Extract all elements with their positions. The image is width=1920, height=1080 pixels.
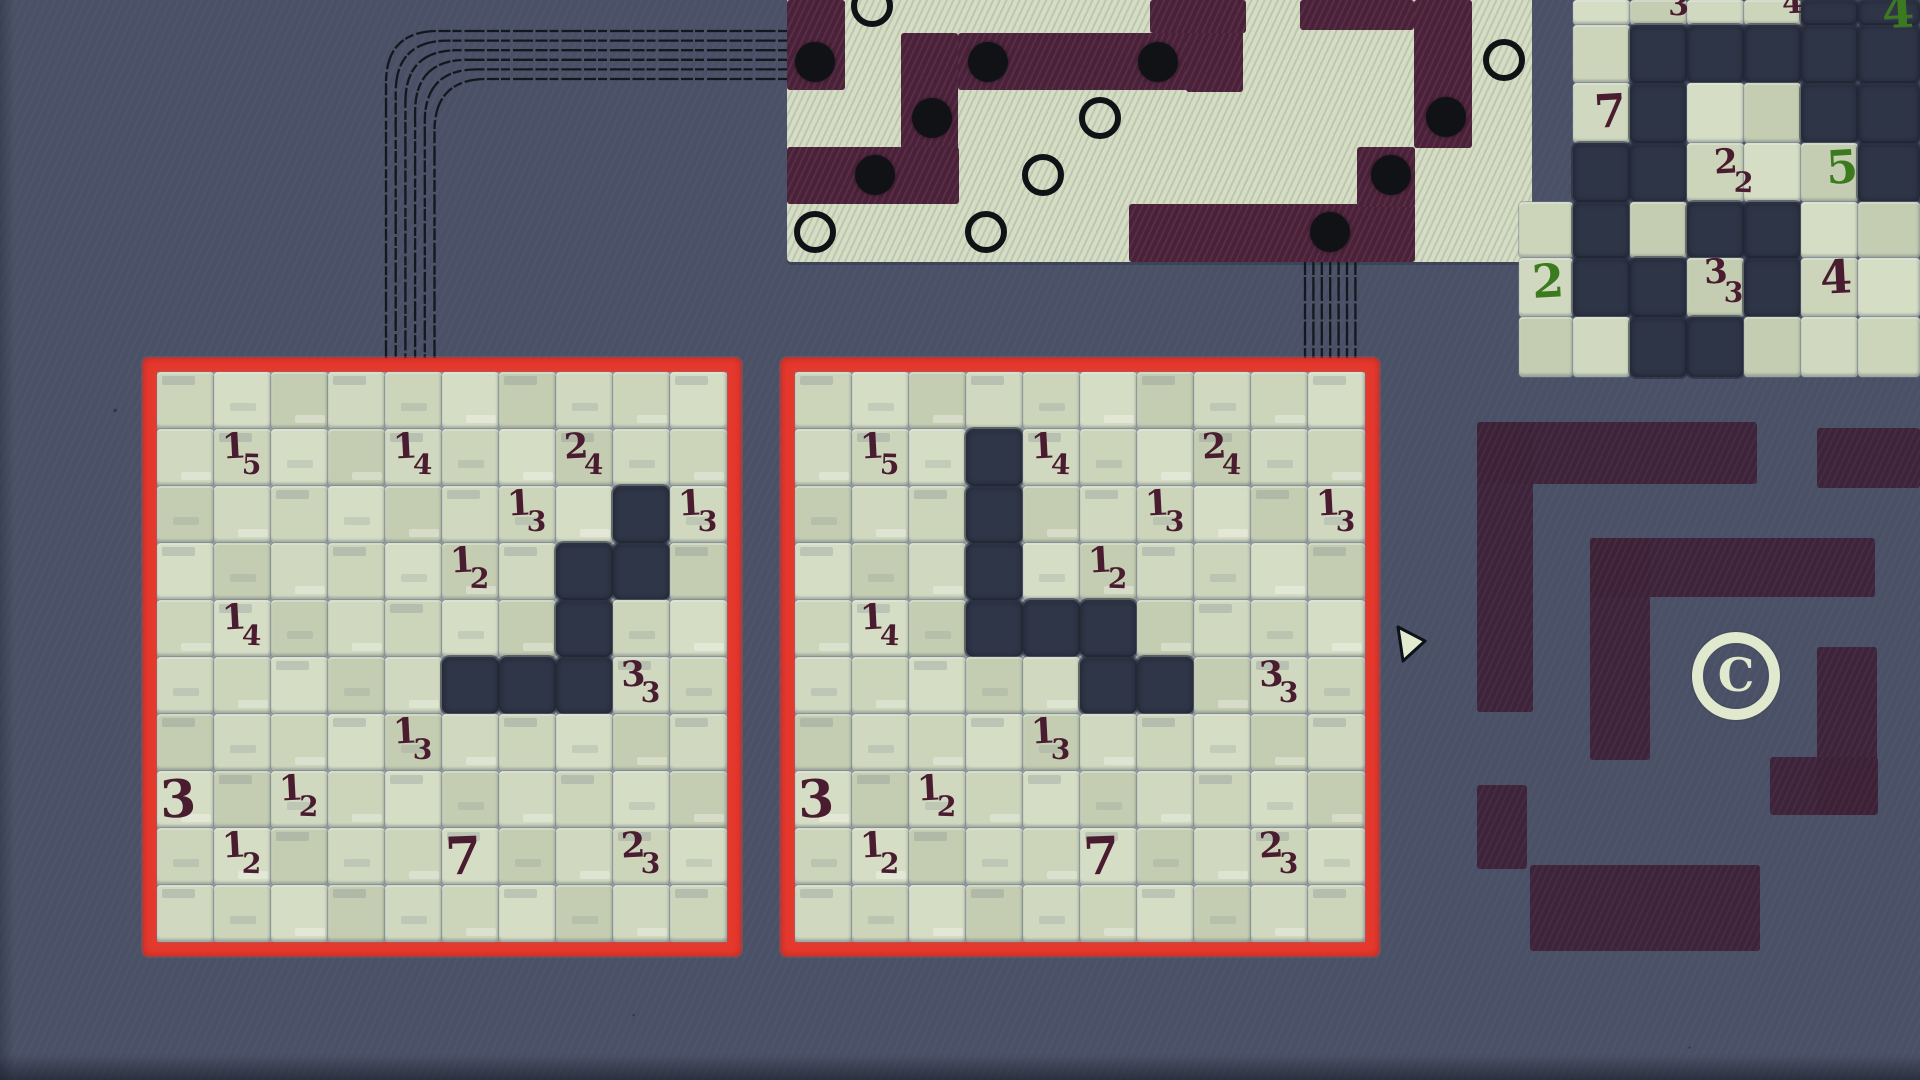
grid-cell[interactable] bbox=[1251, 372, 1308, 429]
mosaic-cell[interactable] bbox=[1858, 143, 1920, 202]
grid-cell[interactable] bbox=[1080, 543, 1137, 600]
grid-cell[interactable] bbox=[385, 543, 442, 600]
grid-cell[interactable] bbox=[328, 600, 385, 657]
grid-cell[interactable] bbox=[1194, 486, 1251, 543]
grid-cell[interactable] bbox=[966, 714, 1023, 771]
grid-cell[interactable] bbox=[909, 714, 966, 771]
mosaic-cell[interactable] bbox=[1744, 143, 1801, 202]
grid-cell[interactable] bbox=[613, 429, 670, 486]
puzzle-grid-left-cells bbox=[157, 372, 727, 942]
mosaic-cell[interactable] bbox=[1744, 317, 1801, 377]
grid-cell[interactable] bbox=[966, 429, 1023, 486]
grid-cell[interactable] bbox=[613, 543, 670, 600]
grid-cell[interactable] bbox=[271, 714, 328, 771]
grid-cell[interactable] bbox=[1251, 885, 1308, 942]
grid-cell[interactable] bbox=[271, 486, 328, 543]
grid-cell[interactable] bbox=[157, 486, 214, 543]
grid-cell[interactable] bbox=[271, 885, 328, 942]
grid-cell[interactable] bbox=[157, 828, 214, 885]
grid-cell[interactable] bbox=[157, 657, 214, 714]
grid-cell[interactable] bbox=[795, 657, 852, 714]
mosaic-cell[interactable] bbox=[1858, 0, 1920, 25]
mosaic-cell[interactable] bbox=[1744, 0, 1801, 25]
grid-cell[interactable] bbox=[909, 600, 966, 657]
grid-cell[interactable] bbox=[670, 543, 727, 600]
grid-cell[interactable] bbox=[1194, 714, 1251, 771]
grid-cell[interactable] bbox=[613, 600, 670, 657]
copyright-symbol: C bbox=[1718, 652, 1755, 698]
mosaic-clue: 22 bbox=[1714, 146, 1771, 203]
puzzle-grid-right[interactable]: 15142413131214331331212723 bbox=[781, 358, 1379, 956]
grid-cell[interactable] bbox=[214, 771, 271, 828]
grid-cell[interactable] bbox=[1194, 771, 1251, 828]
mosaic-cell[interactable] bbox=[1573, 202, 1630, 258]
grid-cell[interactable] bbox=[795, 600, 852, 657]
grid-cell[interactable] bbox=[499, 486, 556, 543]
grid-cell[interactable] bbox=[442, 657, 499, 714]
grid-cell[interactable] bbox=[1023, 372, 1080, 429]
mosaic-cell[interactable] bbox=[1801, 258, 1858, 317]
mosaic-cell[interactable] bbox=[1801, 0, 1858, 25]
mosaic-cell[interactable] bbox=[1573, 83, 1630, 143]
grid-cell[interactable] bbox=[909, 372, 966, 429]
grid-cell[interactable] bbox=[157, 600, 214, 657]
grid-cell[interactable] bbox=[1080, 657, 1137, 714]
grid-cell[interactable] bbox=[385, 828, 442, 885]
grid-cell[interactable] bbox=[1137, 828, 1194, 885]
pearl-filled-icon bbox=[1371, 155, 1411, 195]
grid-cell[interactable] bbox=[385, 657, 442, 714]
grid-cell[interactable] bbox=[795, 885, 852, 942]
mosaic-cell[interactable] bbox=[1687, 317, 1744, 377]
mosaic-cell[interactable] bbox=[1858, 25, 1920, 83]
pearl-filled-icon bbox=[912, 98, 952, 138]
grid-cell[interactable] bbox=[271, 543, 328, 600]
maze-wall bbox=[1817, 428, 1920, 488]
grid-cell[interactable] bbox=[499, 429, 556, 486]
grid-cell[interactable] bbox=[670, 657, 727, 714]
grid-cell[interactable] bbox=[499, 714, 556, 771]
mosaic-cell[interactable] bbox=[1573, 25, 1630, 83]
grid-cell[interactable] bbox=[1194, 543, 1251, 600]
grid-cell[interactable] bbox=[214, 372, 271, 429]
puzzle-grid-right-cells bbox=[795, 372, 1365, 942]
grid-cell[interactable] bbox=[1137, 429, 1194, 486]
grid-cell[interactable] bbox=[613, 486, 670, 543]
grid-cell[interactable] bbox=[157, 885, 214, 942]
grid-cell[interactable] bbox=[613, 372, 670, 429]
grid-cell[interactable] bbox=[328, 543, 385, 600]
grid-cell[interactable] bbox=[966, 657, 1023, 714]
wire-bundle-left bbox=[386, 31, 790, 362]
mosaic-clue: 5 bbox=[1826, 140, 1858, 194]
grid-cell[interactable] bbox=[1137, 486, 1194, 543]
grid-cell[interactable] bbox=[556, 543, 613, 600]
pearl-filled-icon bbox=[795, 42, 835, 82]
mosaic-cell[interactable] bbox=[1519, 317, 1573, 377]
grid-cell[interactable] bbox=[556, 486, 613, 543]
grid-cell[interactable] bbox=[1080, 600, 1137, 657]
copyright-icon: C bbox=[1692, 632, 1780, 720]
grid-cell[interactable] bbox=[909, 885, 966, 942]
pearl-open-icon bbox=[1079, 97, 1121, 139]
grid-cell[interactable] bbox=[1251, 600, 1308, 657]
grid-cell[interactable] bbox=[1308, 714, 1365, 771]
grid-cell[interactable] bbox=[1137, 543, 1194, 600]
mosaic-cell[interactable] bbox=[1573, 143, 1630, 202]
grid-cell[interactable] bbox=[1194, 372, 1251, 429]
grid-cell[interactable] bbox=[499, 600, 556, 657]
grid-cell[interactable] bbox=[1194, 885, 1251, 942]
grid-cell[interactable] bbox=[1308, 657, 1365, 714]
mosaic-cell[interactable] bbox=[1801, 83, 1858, 143]
mosaic-cell[interactable] bbox=[1687, 25, 1744, 83]
grid-cell[interactable] bbox=[214, 885, 271, 942]
grid-cell[interactable] bbox=[214, 657, 271, 714]
grid-cell[interactable] bbox=[1080, 372, 1137, 429]
mosaic-cell[interactable] bbox=[1519, 258, 1573, 317]
grid-cell[interactable] bbox=[852, 600, 909, 657]
grid-cell[interactable] bbox=[271, 429, 328, 486]
grid-cell[interactable] bbox=[1251, 486, 1308, 543]
grid-cell[interactable] bbox=[385, 771, 442, 828]
grid-cell[interactable] bbox=[499, 657, 556, 714]
grid-cell[interactable] bbox=[1137, 600, 1194, 657]
grid-cell[interactable] bbox=[328, 429, 385, 486]
grid-cell[interactable] bbox=[1137, 657, 1194, 714]
grid-cell[interactable] bbox=[852, 885, 909, 942]
grid-cell[interactable] bbox=[1308, 828, 1365, 885]
grid-cell[interactable] bbox=[442, 714, 499, 771]
grid-cell[interactable] bbox=[271, 771, 328, 828]
grid-cell[interactable] bbox=[795, 486, 852, 543]
pearl-open-icon bbox=[1022, 154, 1064, 196]
grid-cell[interactable] bbox=[442, 771, 499, 828]
mosaic-cell[interactable] bbox=[1630, 0, 1687, 25]
grid-cell[interactable] bbox=[852, 543, 909, 600]
grid-cell[interactable] bbox=[966, 828, 1023, 885]
grid-cell[interactable] bbox=[1194, 600, 1251, 657]
grid-cell[interactable] bbox=[613, 828, 670, 885]
wire-bundle-right bbox=[1305, 259, 1355, 362]
grid-cell[interactable] bbox=[1308, 600, 1365, 657]
grid-cell[interactable] bbox=[909, 828, 966, 885]
mosaic-cell[interactable] bbox=[1687, 202, 1744, 258]
mouse-cursor bbox=[1398, 627, 1425, 661]
grid-cell[interactable] bbox=[442, 828, 499, 885]
grid-cell[interactable] bbox=[556, 771, 613, 828]
grid-cell[interactable] bbox=[1080, 714, 1137, 771]
mosaic-cell[interactable] bbox=[1801, 25, 1858, 83]
grid-cell[interactable] bbox=[1308, 429, 1365, 486]
grid-cell[interactable] bbox=[271, 372, 328, 429]
grid-cell[interactable] bbox=[214, 714, 271, 771]
grid-cell[interactable] bbox=[499, 828, 556, 885]
grid-cell[interactable] bbox=[556, 828, 613, 885]
path-segment bbox=[1129, 204, 1415, 262]
pearl-open-icon bbox=[965, 211, 1007, 253]
grid-cell[interactable] bbox=[1137, 771, 1194, 828]
grid-cell[interactable] bbox=[852, 429, 909, 486]
grid-cell[interactable] bbox=[442, 543, 499, 600]
grid-cell[interactable] bbox=[157, 372, 214, 429]
pearl-path-puzzle[interactable] bbox=[787, 0, 1532, 262]
grid-cell[interactable] bbox=[1251, 828, 1308, 885]
grid-cell[interactable] bbox=[385, 885, 442, 942]
grid-cell[interactable] bbox=[385, 429, 442, 486]
grid-cell[interactable] bbox=[157, 714, 214, 771]
grid-cell[interactable] bbox=[157, 543, 214, 600]
mosaic-clue: 2 bbox=[1532, 254, 1564, 308]
mosaic-cell[interactable] bbox=[1744, 83, 1801, 143]
grid-cell[interactable] bbox=[1080, 771, 1137, 828]
maze-wall bbox=[1477, 785, 1527, 869]
grid-cell[interactable] bbox=[214, 429, 271, 486]
mosaic-cell[interactable] bbox=[1630, 202, 1687, 258]
mosaic-clue: 3 bbox=[1668, 0, 1689, 23]
grid-cell[interactable] bbox=[795, 771, 852, 828]
mosaic-clue: 4 bbox=[1882, 0, 1914, 38]
grid-cell[interactable] bbox=[442, 600, 499, 657]
grid-cell[interactable] bbox=[1194, 828, 1251, 885]
grid-cell[interactable] bbox=[795, 372, 852, 429]
grid-cell[interactable] bbox=[1137, 885, 1194, 942]
grid-cell[interactable] bbox=[1023, 657, 1080, 714]
mosaic-clue: 33 bbox=[1704, 256, 1761, 313]
grid-cell[interactable] bbox=[1251, 657, 1308, 714]
grid-cell[interactable] bbox=[613, 714, 670, 771]
grid-cell[interactable] bbox=[328, 885, 385, 942]
grid-cell[interactable] bbox=[1137, 714, 1194, 771]
mosaic-cell[interactable] bbox=[1858, 317, 1920, 377]
pearl-filled-icon bbox=[1310, 212, 1350, 252]
grid-cell[interactable] bbox=[1308, 543, 1365, 600]
mosaic-clue: 7 bbox=[1594, 84, 1626, 138]
grid-cell[interactable] bbox=[499, 885, 556, 942]
mosaic-cell[interactable] bbox=[1573, 317, 1630, 377]
grid-cell[interactable] bbox=[556, 600, 613, 657]
grid-cell[interactable] bbox=[271, 600, 328, 657]
mosaic-cell[interactable] bbox=[1573, 0, 1630, 25]
grid-cell[interactable] bbox=[1080, 486, 1137, 543]
grid-cell[interactable] bbox=[1308, 771, 1365, 828]
grid-cell[interactable] bbox=[271, 828, 328, 885]
mosaic-cell[interactable] bbox=[1687, 0, 1744, 25]
grid-cell[interactable] bbox=[670, 714, 727, 771]
grid-cell[interactable] bbox=[909, 429, 966, 486]
grid-cell[interactable] bbox=[328, 486, 385, 543]
grid-cell[interactable] bbox=[1137, 372, 1194, 429]
grid-cell[interactable] bbox=[157, 429, 214, 486]
grid-cell[interactable] bbox=[852, 486, 909, 543]
mosaic-cell[interactable] bbox=[1744, 258, 1801, 317]
grid-cell[interactable] bbox=[613, 885, 670, 942]
pearl-open-icon bbox=[851, 0, 893, 27]
pearl-filled-icon bbox=[855, 155, 895, 195]
grid-cell[interactable] bbox=[852, 372, 909, 429]
grid-cell[interactable] bbox=[909, 657, 966, 714]
grid-cell[interactable] bbox=[909, 543, 966, 600]
grid-cell[interactable] bbox=[385, 714, 442, 771]
grid-cell[interactable] bbox=[966, 600, 1023, 657]
mosaic-cell[interactable] bbox=[1630, 25, 1687, 83]
grid-cell[interactable] bbox=[385, 486, 442, 543]
grid-cell[interactable] bbox=[1080, 885, 1137, 942]
mosaic-cell[interactable] bbox=[1744, 202, 1801, 258]
pearl-filled-icon bbox=[968, 42, 1008, 82]
grid-cell[interactable] bbox=[1251, 429, 1308, 486]
mosaic-cell[interactable] bbox=[1744, 25, 1801, 83]
puzzle-grid-left[interactable]: 15142413131214331331212723 bbox=[143, 358, 741, 956]
grid-cell[interactable] bbox=[1080, 429, 1137, 486]
grid-cell[interactable] bbox=[214, 600, 271, 657]
path-segment bbox=[1300, 0, 1414, 30]
mosaic-cell[interactable] bbox=[1630, 143, 1687, 202]
grid-cell[interactable] bbox=[966, 885, 1023, 942]
grid-cell[interactable] bbox=[442, 429, 499, 486]
grid-cell[interactable] bbox=[499, 543, 556, 600]
grid-cell[interactable] bbox=[556, 372, 613, 429]
mosaic-cell[interactable] bbox=[1630, 317, 1687, 377]
grid-cell[interactable] bbox=[966, 486, 1023, 543]
grid-cell[interactable] bbox=[1251, 771, 1308, 828]
grid-cell[interactable] bbox=[214, 486, 271, 543]
grid-cell[interactable] bbox=[442, 486, 499, 543]
grid-cell[interactable] bbox=[670, 429, 727, 486]
grid-cell[interactable] bbox=[1023, 714, 1080, 771]
grid-cell[interactable] bbox=[670, 600, 727, 657]
grid-cell[interactable] bbox=[909, 771, 966, 828]
grid-cell[interactable] bbox=[1251, 714, 1308, 771]
grid-cell[interactable] bbox=[795, 714, 852, 771]
game-board: 34472252334 15142413131214331331212723 1… bbox=[0, 0, 1920, 1080]
mosaic-cell[interactable] bbox=[1858, 202, 1920, 258]
grid-cell[interactable] bbox=[328, 714, 385, 771]
grid-cell[interactable] bbox=[909, 486, 966, 543]
grid-cell[interactable] bbox=[1023, 543, 1080, 600]
grid-cell[interactable] bbox=[328, 828, 385, 885]
grid-cell[interactable] bbox=[328, 771, 385, 828]
grid-cell[interactable] bbox=[670, 486, 727, 543]
grid-cell[interactable] bbox=[1023, 771, 1080, 828]
grid-cell[interactable] bbox=[385, 600, 442, 657]
mosaic-cell[interactable] bbox=[1687, 143, 1744, 202]
mosaic-cell[interactable] bbox=[1630, 258, 1687, 317]
grid-cell[interactable] bbox=[1308, 885, 1365, 942]
mosaic-cell[interactable] bbox=[1801, 317, 1858, 377]
mosaic-cell[interactable] bbox=[1801, 202, 1858, 258]
grid-cell[interactable] bbox=[1194, 657, 1251, 714]
mosaic-clue: 4 bbox=[1782, 0, 1803, 21]
grid-cell[interactable] bbox=[214, 543, 271, 600]
grid-cell[interactable] bbox=[499, 372, 556, 429]
grid-cell[interactable] bbox=[328, 372, 385, 429]
grid-cell[interactable] bbox=[1023, 429, 1080, 486]
mosaic-clue: 4 bbox=[1820, 250, 1852, 304]
grid-cell[interactable] bbox=[1251, 543, 1308, 600]
grid-cell[interactable] bbox=[442, 885, 499, 942]
mosaic-cell[interactable] bbox=[1858, 258, 1920, 317]
grid-cell[interactable] bbox=[795, 828, 852, 885]
maze-wall bbox=[1477, 422, 1533, 712]
mosaic-cell[interactable] bbox=[1630, 83, 1687, 143]
path-segment bbox=[1150, 0, 1246, 33]
grid-cell[interactable] bbox=[852, 714, 909, 771]
mosaic-cell[interactable] bbox=[1687, 83, 1744, 143]
pearl-filled-icon bbox=[1138, 42, 1178, 82]
grid-cell[interactable] bbox=[670, 828, 727, 885]
grid-cell[interactable] bbox=[670, 885, 727, 942]
grid-cell[interactable] bbox=[556, 657, 613, 714]
grid-cell[interactable] bbox=[442, 372, 499, 429]
mosaic-cell[interactable] bbox=[1687, 258, 1744, 317]
pearl-filled-icon bbox=[1426, 97, 1466, 137]
grid-cell[interactable] bbox=[613, 657, 670, 714]
grid-cell[interactable] bbox=[852, 828, 909, 885]
grid-cell[interactable] bbox=[966, 771, 1023, 828]
grid-cell[interactable] bbox=[1194, 429, 1251, 486]
grid-cell[interactable] bbox=[1308, 372, 1365, 429]
grid-cell[interactable] bbox=[795, 429, 852, 486]
grid-cell[interactable] bbox=[1080, 828, 1137, 885]
grid-cell[interactable] bbox=[613, 771, 670, 828]
grid-cell[interactable] bbox=[1023, 486, 1080, 543]
grid-cell[interactable] bbox=[499, 771, 556, 828]
pearl-open-icon bbox=[794, 211, 836, 253]
grid-cell[interactable] bbox=[385, 372, 442, 429]
mosaic-cell[interactable] bbox=[1858, 83, 1920, 143]
grid-cell[interactable] bbox=[852, 657, 909, 714]
grid-cell[interactable] bbox=[852, 771, 909, 828]
grid-cell[interactable] bbox=[966, 543, 1023, 600]
grid-cell[interactable] bbox=[670, 372, 727, 429]
grid-cell[interactable] bbox=[1308, 486, 1365, 543]
grid-cell[interactable] bbox=[795, 543, 852, 600]
grid-cell[interactable] bbox=[328, 657, 385, 714]
maze-wall bbox=[1530, 865, 1760, 951]
grid-cell[interactable] bbox=[556, 885, 613, 942]
grid-cell[interactable] bbox=[556, 714, 613, 771]
pearl-open-icon bbox=[1483, 39, 1525, 81]
mosaic-cell[interactable] bbox=[1573, 258, 1630, 317]
mosaic-cell[interactable] bbox=[1801, 143, 1858, 202]
grid-cell[interactable] bbox=[1023, 828, 1080, 885]
grid-cell[interactable] bbox=[670, 771, 727, 828]
grid-cell[interactable] bbox=[1023, 885, 1080, 942]
grid-cell[interactable] bbox=[214, 828, 271, 885]
grid-cell[interactable] bbox=[966, 372, 1023, 429]
grid-cell[interactable] bbox=[556, 429, 613, 486]
maze-wall bbox=[1590, 538, 1650, 760]
grid-cell[interactable] bbox=[271, 657, 328, 714]
grid-cell[interactable] bbox=[157, 771, 214, 828]
grid-cell[interactable] bbox=[1023, 600, 1080, 657]
maze-wall bbox=[1770, 757, 1878, 815]
